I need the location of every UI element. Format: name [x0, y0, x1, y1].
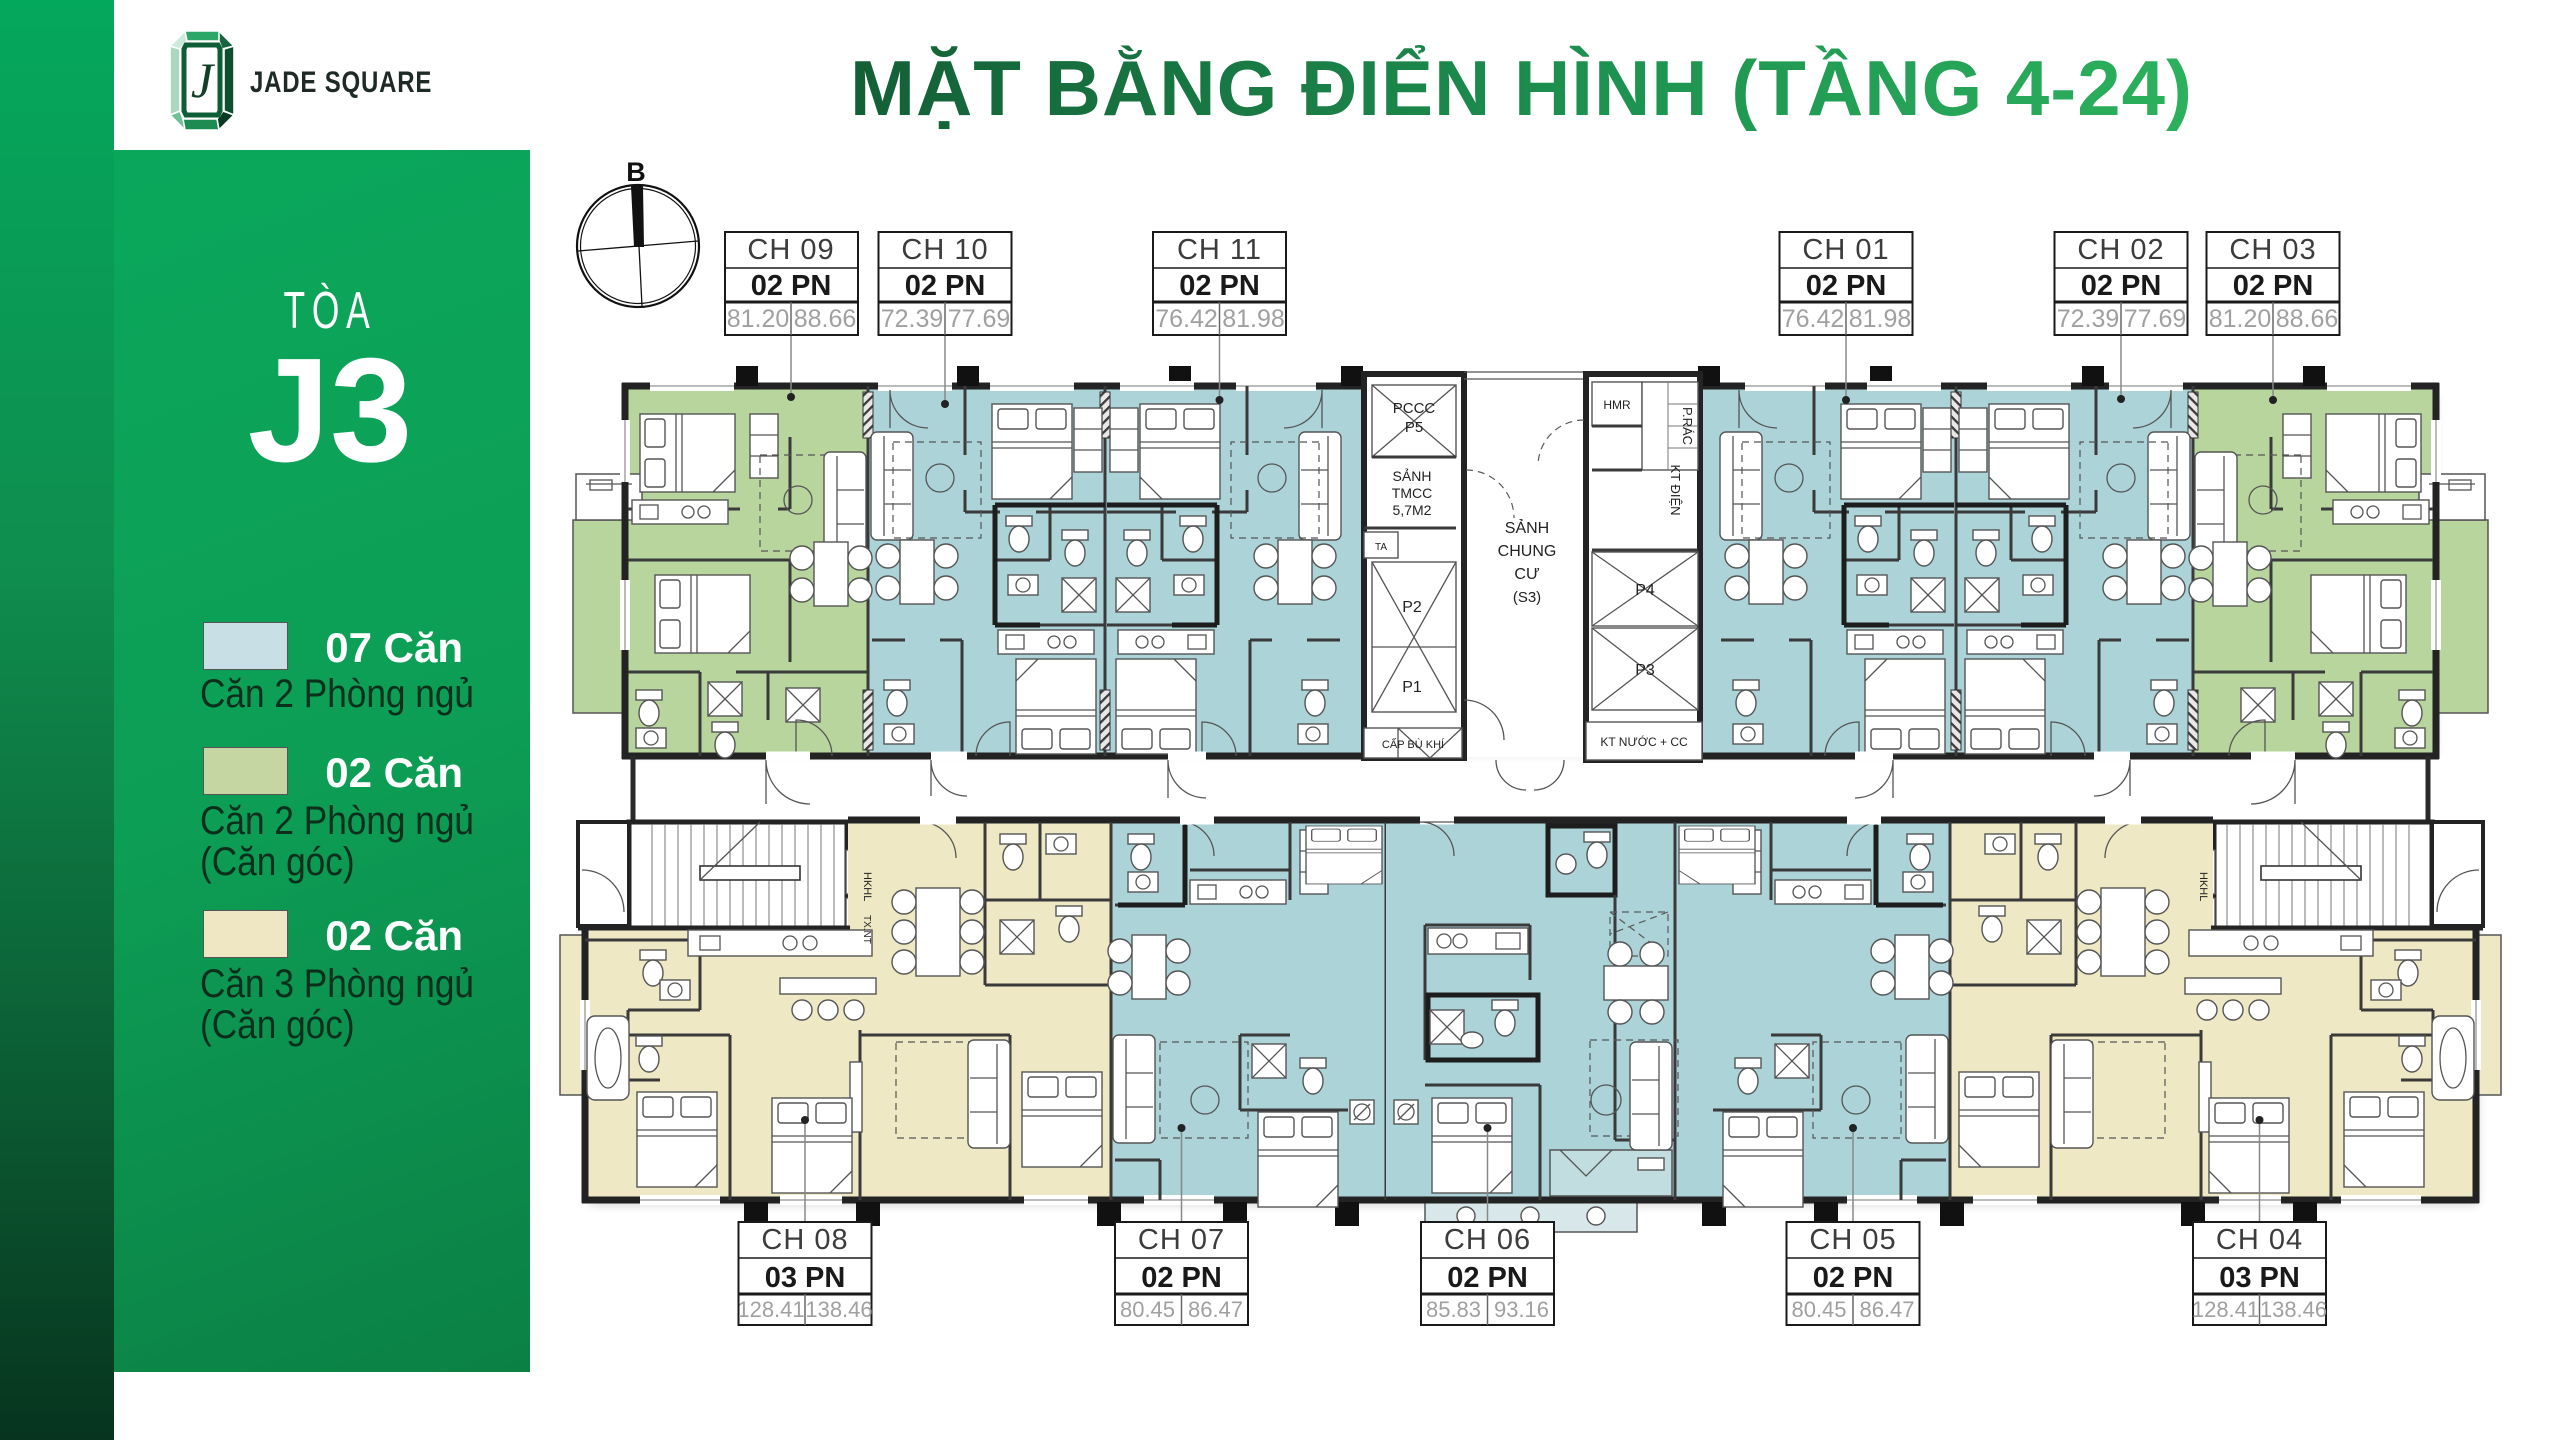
svg-text:CH 02: CH 02	[2077, 234, 2164, 266]
svg-text:HKHL: HKHL	[861, 872, 873, 901]
svg-text:TX.NT: TX.NT	[861, 915, 872, 944]
svg-text:128.41: 128.41	[2192, 1297, 2259, 1322]
svg-text:81.20: 81.20	[2209, 305, 2272, 333]
svg-text:CH 08: CH 08	[761, 1224, 848, 1256]
svg-text:02 PN: 02 PN	[1806, 270, 1887, 302]
svg-text:85.83: 85.83	[1426, 1297, 1481, 1322]
svg-text:03 PN: 03 PN	[2219, 1262, 2300, 1294]
svg-text:80.45: 80.45	[1120, 1297, 1175, 1322]
svg-text:76.42: 76.42	[1782, 305, 1845, 333]
svg-text:CH 04: CH 04	[2216, 1224, 2303, 1256]
svg-text:03 PN: 03 PN	[765, 1262, 846, 1294]
svg-text:128.41: 128.41	[737, 1297, 804, 1322]
svg-text:CH 09: CH 09	[747, 234, 834, 266]
svg-text:CH 07: CH 07	[1138, 1224, 1225, 1256]
svg-text:KT NƯỚC + CC: KT NƯỚC + CC	[1600, 734, 1688, 749]
svg-text:HKHL: HKHL	[2197, 872, 2209, 901]
svg-text:80.45: 80.45	[1791, 1297, 1846, 1322]
svg-text:CƯ: CƯ	[1514, 566, 1539, 583]
svg-text:HMR: HMR	[1603, 398, 1631, 412]
svg-text:KT ĐIỆN: KT ĐIỆN	[1668, 464, 1683, 515]
svg-text:TMCC: TMCC	[1392, 485, 1432, 501]
svg-text:SẢNH: SẢNH	[1505, 518, 1549, 537]
svg-text:CH 03: CH 03	[2229, 234, 2316, 266]
svg-text:93.16: 93.16	[1494, 1297, 1549, 1322]
svg-text:P4: P4	[1635, 582, 1655, 599]
svg-text:TA: TA	[1375, 542, 1387, 553]
svg-text:02 PN: 02 PN	[905, 270, 986, 302]
svg-text:CH 11: CH 11	[1177, 234, 1262, 266]
svg-text:CH 10: CH 10	[901, 234, 988, 266]
svg-text:02 PN: 02 PN	[1179, 270, 1260, 302]
svg-text:CẤP BÙ KHÍ: CẤP BÙ KHÍ	[1382, 738, 1445, 751]
svg-text:CH 06: CH 06	[1444, 1224, 1531, 1256]
svg-text:88.66: 88.66	[2276, 305, 2339, 333]
svg-text:P3: P3	[1635, 662, 1655, 679]
svg-text:72.39: 72.39	[881, 305, 944, 333]
svg-text:SẢNH: SẢNH	[1393, 468, 1432, 484]
svg-text:(S3): (S3)	[1513, 589, 1541, 606]
svg-text:02 PN: 02 PN	[1141, 1262, 1222, 1294]
svg-text:77.69: 77.69	[2124, 305, 2187, 333]
svg-text:P5: P5	[1405, 419, 1423, 436]
svg-text:02 PN: 02 PN	[2081, 270, 2162, 302]
svg-text:02 PN: 02 PN	[2233, 270, 2314, 302]
svg-text:PCCC: PCCC	[1393, 400, 1436, 417]
svg-text:72.39: 72.39	[2057, 305, 2120, 333]
svg-text:CH 05: CH 05	[1809, 1224, 1896, 1256]
svg-text:86.47: 86.47	[1859, 1297, 1914, 1322]
svg-text:88.66: 88.66	[794, 305, 857, 333]
svg-text:81.20: 81.20	[727, 305, 790, 333]
svg-text:02 PN: 02 PN	[1447, 1262, 1528, 1294]
svg-text:77.69: 77.69	[948, 305, 1011, 333]
svg-text:81.98: 81.98	[1222, 305, 1285, 333]
svg-text:76.42: 76.42	[1155, 305, 1218, 333]
svg-text:02 PN: 02 PN	[751, 270, 832, 302]
svg-text:138.46: 138.46	[805, 1297, 872, 1322]
svg-text:138.46: 138.46	[2260, 1297, 2327, 1322]
svg-text:CHUNG: CHUNG	[1498, 543, 1557, 560]
svg-text:5,7M2: 5,7M2	[1393, 502, 1432, 518]
svg-text:86.47: 86.47	[1188, 1297, 1243, 1322]
svg-text:CH 01: CH 01	[1802, 234, 1889, 266]
svg-text:B: B	[626, 157, 646, 187]
svg-text:02 PN: 02 PN	[1813, 1262, 1894, 1294]
svg-text:P2: P2	[1402, 599, 1422, 616]
svg-text:81.98: 81.98	[1849, 305, 1912, 333]
svg-text:P1: P1	[1402, 679, 1422, 696]
svg-text:P.RÁC: P.RÁC	[1680, 407, 1695, 445]
